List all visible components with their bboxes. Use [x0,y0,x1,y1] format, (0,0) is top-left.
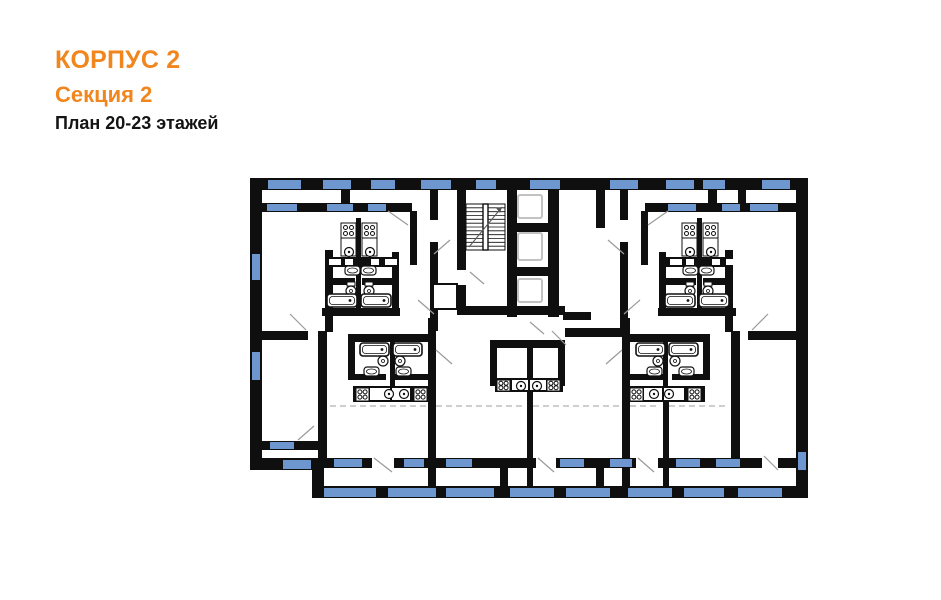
floor-plan [0,0,941,600]
bathtub-icon [665,294,695,307]
staircase [466,204,505,250]
stove-icon [341,223,356,238]
stove-icon [703,223,718,238]
stove-icon [688,388,701,401]
walls-layer [250,178,808,498]
toilet-icon [365,282,373,286]
stove-icon [414,388,427,401]
elevator-cars [518,195,542,302]
stove-icon [630,388,643,401]
bathtub-icon [699,294,729,307]
bathtub-icon [393,343,422,356]
bathtub-icon [361,294,391,307]
bathtub-icon [360,343,389,356]
stove-icon [497,380,510,391]
page: КОРПУС 2 Секция 2 План 20-23 этажей [0,0,941,600]
bathtub-icon [327,294,357,307]
toilet-icon [704,282,712,286]
closet-outline [433,284,457,309]
toilet-icon [686,282,694,286]
stove-icon [362,223,377,238]
bathtub-icon [636,343,665,356]
stove-icon [356,388,369,401]
stove-icon [547,380,560,391]
bathtub-icon [669,343,698,356]
toilet-icon [347,282,355,286]
stove-icon [682,223,697,238]
